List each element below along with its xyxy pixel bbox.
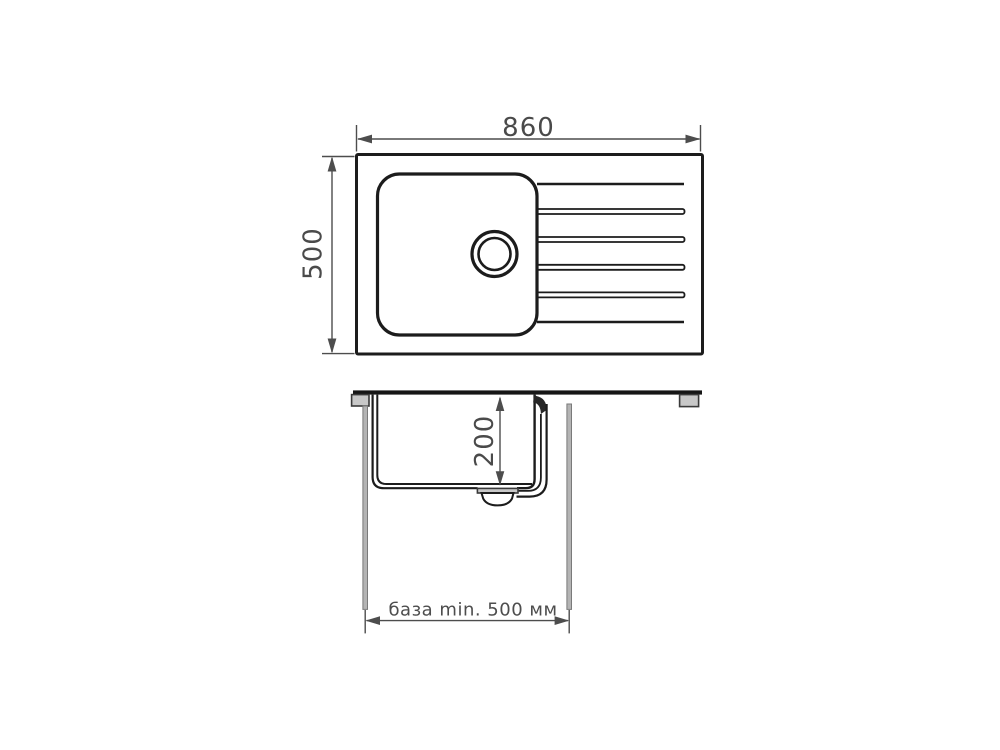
cabinet-panel-left (363, 406, 368, 609)
dim-depth-label: 500 (299, 227, 329, 280)
top-view (357, 155, 703, 355)
arrow-up-icon (328, 157, 337, 172)
dim-bowl-depth-label: 200 (470, 415, 500, 468)
arrow-right-icon (686, 135, 701, 144)
arrow-left-icon (365, 616, 380, 625)
dim-overall-depth: 500 (299, 157, 355, 354)
arrow-left-icon (357, 135, 372, 144)
dim-cabinet-base: база min. 500 мм (365, 600, 569, 634)
sink-drawing-canvas: 860 500 200 (0, 0, 1000, 750)
bowl-section-right-wall (517, 395, 535, 489)
dim-overall-width: 860 (357, 113, 701, 152)
section-view (352, 390, 702, 609)
dim-bowl-depth: 200 (470, 396, 505, 485)
arrow-down-icon (328, 339, 337, 354)
mounting-clip-right (680, 395, 699, 407)
countertop-bar (353, 390, 702, 394)
bowl-section-outer-wall (373, 395, 478, 489)
overflow-pipe-inner (517, 414, 541, 491)
dim-base-label: база min. 500 мм (388, 600, 557, 621)
bowl-section-inner-wall (377, 395, 532, 484)
drain-trap (482, 493, 514, 505)
mounting-clip-left (352, 395, 369, 406)
overflow-pipe-outer (517, 404, 547, 497)
arrow-up-icon (496, 396, 505, 411)
sink-technical-drawing: 860 500 200 (0, 0, 1000, 750)
cabinet-panel-right (567, 404, 572, 609)
dim-width-label: 860 (502, 113, 555, 143)
